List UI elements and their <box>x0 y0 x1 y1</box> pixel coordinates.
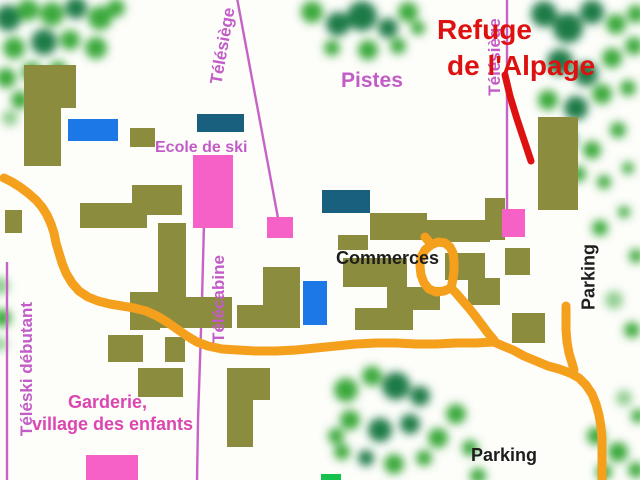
pistes-label: Pistes <box>341 69 403 93</box>
refuge-building <box>538 117 578 210</box>
garderie-label-line2: village des enfants <box>32 414 193 435</box>
refuge-label-line2: de l'Alpage <box>447 50 595 82</box>
refuge-pointer-line <box>505 75 531 161</box>
parking-spur-path <box>566 306 574 370</box>
telecabine-line <box>197 185 205 480</box>
telecabine-label: Télécabine <box>209 255 229 343</box>
green-building <box>321 474 341 480</box>
refuge-label-line1: Refuge <box>437 14 532 46</box>
ecole-de-ski-label: Ecole de ski <box>155 139 248 157</box>
parking-right-label: Parking <box>579 244 600 310</box>
telesiege-top-station <box>267 217 293 238</box>
garderie-building <box>86 455 138 480</box>
telesiege-right-station <box>502 209 525 237</box>
ecole-de-ski-building <box>193 155 233 228</box>
commerces-label: Commerces <box>336 248 439 269</box>
loop-tail <box>425 237 431 244</box>
telesiege-top-line <box>237 0 278 218</box>
ski-resort-map: Télésiège Télésiège Télécabine Téléski d… <box>0 0 640 480</box>
garderie-label-line1: Garderie, <box>68 392 147 413</box>
parking-bottom-label: Parking <box>471 445 537 466</box>
